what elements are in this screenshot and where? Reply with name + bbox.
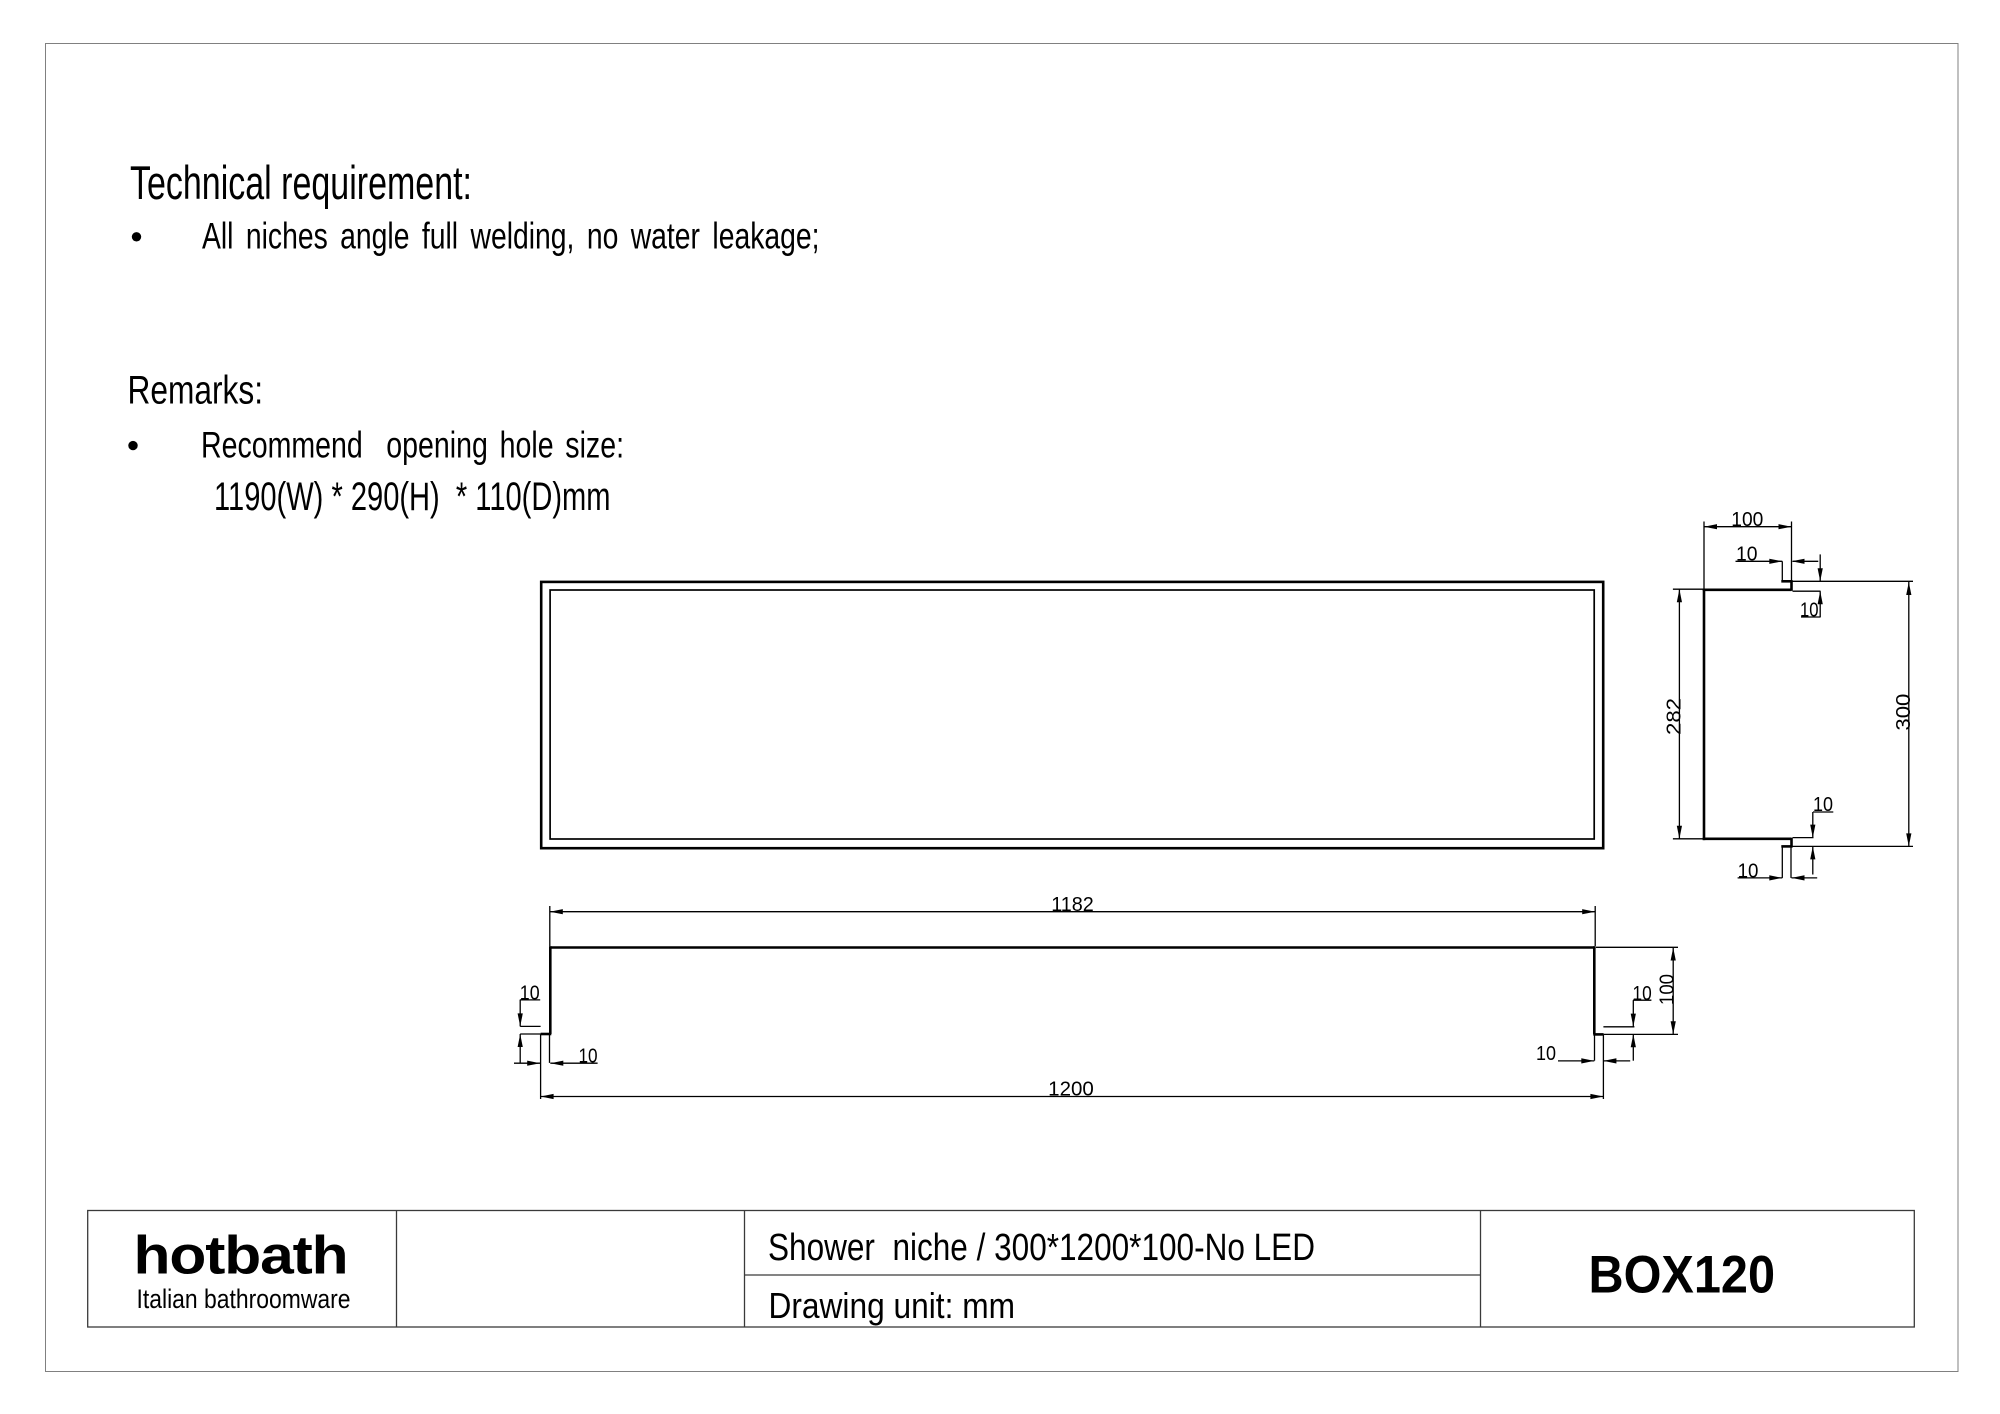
svg-text:hotbath: hotbath [134, 1226, 348, 1286]
svg-text:Shower niche / 300*1200*100-N: Shower niche / 300*1200*100-No LED [768, 1227, 1315, 1269]
svg-text:300: 300 [1893, 694, 1915, 731]
svg-text:10: 10 [1633, 983, 1652, 1005]
svg-text:10: 10 [1800, 600, 1819, 622]
svg-text:10: 10 [578, 1046, 597, 1068]
svg-text:10: 10 [1738, 860, 1759, 882]
svg-text:Italian bathroomware: Italian bathroomware [137, 1284, 351, 1314]
svg-text:10: 10 [520, 982, 540, 1004]
svg-text:Technical requirement:: Technical requirement: [130, 156, 472, 209]
svg-text:BOX120: BOX120 [1589, 1245, 1776, 1304]
svg-text:All niches angle full welding,: All niches angle full welding, no water … [202, 214, 820, 256]
svg-text:1200: 1200 [1048, 1079, 1094, 1101]
svg-text:10: 10 [1813, 794, 1833, 816]
svg-text:10: 10 [1536, 1043, 1556, 1065]
svg-text:100: 100 [1731, 509, 1763, 531]
svg-text:100: 100 [1657, 974, 1679, 1005]
svg-text:1190(W) * 290(H) * 110(D)mm: 1190(W) * 290(H) * 110(D)mm [214, 475, 611, 519]
svg-text:282: 282 [1664, 698, 1686, 735]
svg-text:Recommend opening hole size:: Recommend opening hole size: [201, 423, 624, 465]
svg-text:10: 10 [1736, 544, 1758, 566]
svg-text:Remarks:: Remarks: [128, 368, 264, 412]
svg-text:1182: 1182 [1051, 894, 1094, 916]
svg-text:Drawing unit: mm: Drawing unit: mm [769, 1285, 1016, 1326]
